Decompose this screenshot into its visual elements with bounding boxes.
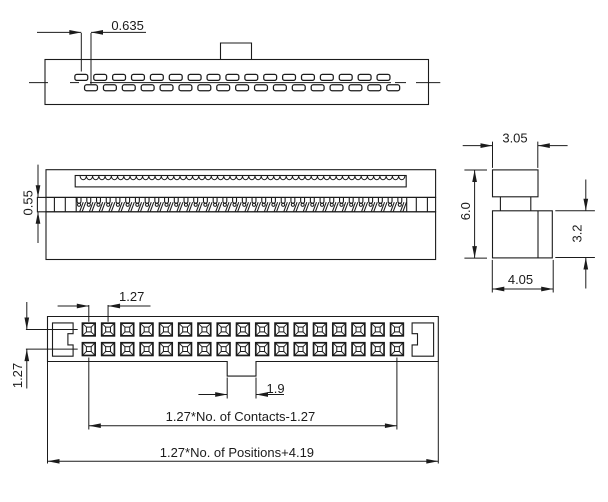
svg-text:6.0: 6.0 [458, 202, 473, 220]
svg-text:1.27: 1.27 [119, 289, 144, 304]
svg-text:1.27*No. of Positions+4.19: 1.27*No. of Positions+4.19 [160, 445, 314, 460]
svg-text:0.635: 0.635 [111, 18, 144, 33]
svg-text:4.05: 4.05 [508, 272, 533, 287]
svg-text:1.27: 1.27 [10, 363, 25, 388]
svg-text:3.2: 3.2 [569, 224, 584, 242]
svg-text:1.9: 1.9 [267, 381, 285, 396]
svg-text:0.55: 0.55 [20, 190, 35, 215]
svg-text:3.05: 3.05 [502, 130, 527, 145]
svg-text:1.27*No. of Contacts-1.27: 1.27*No. of Contacts-1.27 [166, 409, 316, 424]
